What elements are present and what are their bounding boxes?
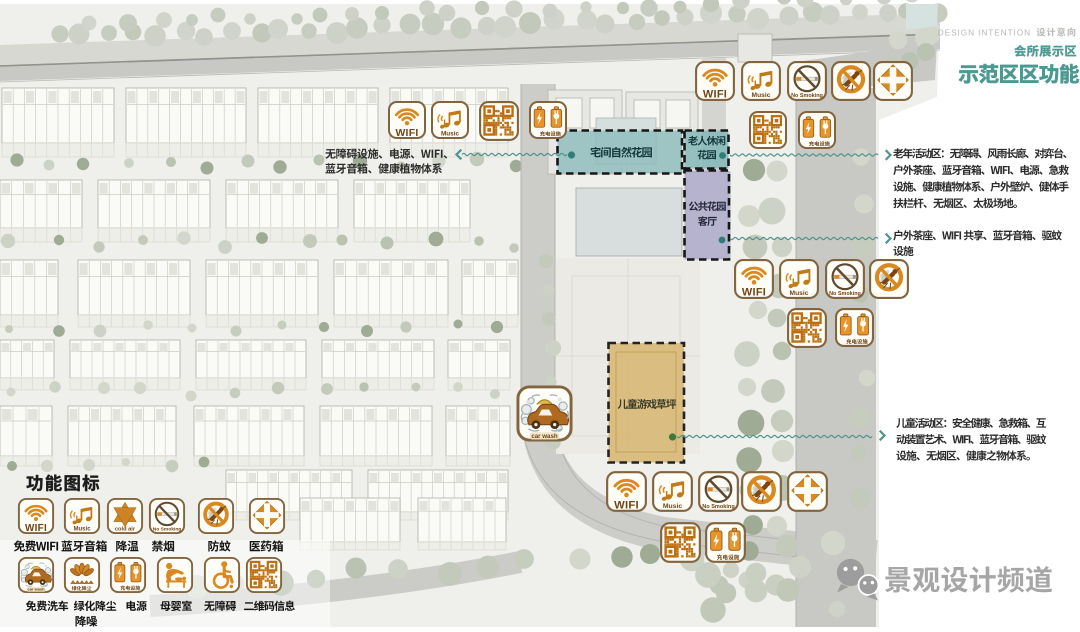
svg-text:DESIGN INTENTION: DESIGN INTENTION (938, 28, 1031, 38)
